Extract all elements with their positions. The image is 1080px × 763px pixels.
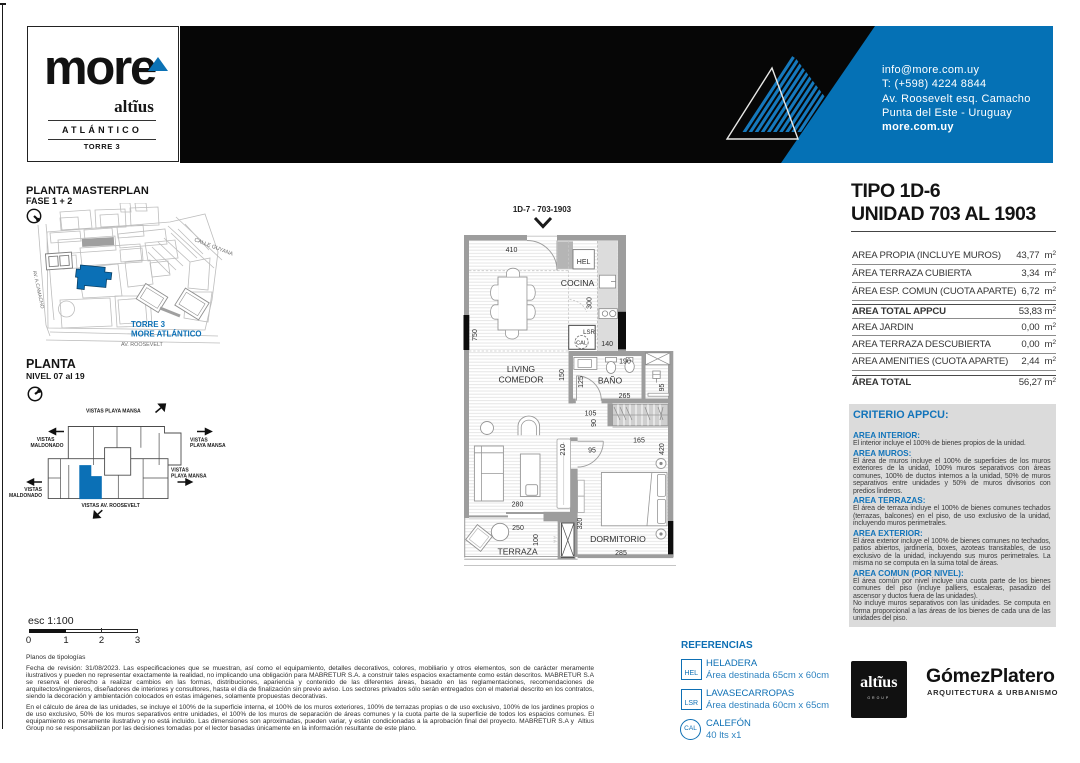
svg-text:265: 265 (619, 393, 631, 400)
svg-text:280: 280 (512, 502, 524, 509)
svg-text:750: 750 (472, 329, 479, 341)
svg-text:165: 165 (633, 438, 645, 445)
svg-text:125: 125 (578, 376, 585, 388)
svg-text:BAÑO: BAÑO (598, 376, 623, 386)
svg-text:A A: A A (553, 536, 558, 544)
svg-text:COMEDOR: COMEDOR (499, 375, 544, 385)
svg-text:LSR: LSR (583, 330, 595, 336)
svg-text:190: 190 (619, 359, 631, 366)
svg-text:210: 210 (560, 444, 567, 456)
svg-text:TORRE 3: TORRE 3 (131, 320, 166, 329)
svg-text:VISTAS AV. ROOSEVELT: VISTAS AV. ROOSEVELT (82, 503, 140, 509)
svg-text:95: 95 (659, 384, 666, 392)
svg-text:100: 100 (533, 534, 540, 546)
svg-text:320: 320 (577, 518, 584, 530)
svg-text:PLAYA MANSA: PLAYA MANSA (171, 473, 207, 479)
svg-text:420: 420 (659, 443, 666, 455)
svg-text:250: 250 (512, 525, 524, 532)
svg-text:VISTAS: VISTAS (37, 437, 55, 443)
svg-text:CAL: CAL (576, 340, 587, 346)
svg-text:PLAYA MANSA: PLAYA MANSA (190, 443, 226, 449)
svg-text:140: 140 (601, 341, 613, 348)
svg-text:410: 410 (506, 247, 518, 254)
svg-text:HEL: HEL (577, 259, 591, 266)
svg-text:TERRAZA: TERRAZA (498, 547, 538, 557)
svg-text:90: 90 (591, 419, 598, 427)
svg-text:1D-7 - 703-1903: 1D-7 - 703-1903 (513, 205, 572, 214)
svg-text:COCINA: COCINA (561, 278, 595, 288)
svg-text:285: 285 (615, 550, 627, 557)
svg-text:VISTAS PLAYA MANSA: VISTAS PLAYA MANSA (86, 409, 141, 415)
svg-text:105: 105 (585, 411, 597, 418)
svg-text:95: 95 (588, 448, 596, 455)
svg-text:LIVING: LIVING (507, 364, 535, 374)
svg-text:MALDONADO: MALDONADO (30, 443, 63, 449)
svg-text:300: 300 (587, 297, 594, 309)
svg-text:MALDONADO: MALDONADO (9, 493, 42, 499)
svg-text:DORMITORIO: DORMITORIO (590, 534, 646, 544)
svg-text:AV. ROOSEVELT: AV. ROOSEVELT (121, 342, 164, 348)
svg-text:150: 150 (559, 369, 566, 381)
svg-text:MORE ATLÁNTICO: MORE ATLÁNTICO (131, 330, 202, 339)
svg-text:VISTAS: VISTAS (171, 467, 189, 473)
